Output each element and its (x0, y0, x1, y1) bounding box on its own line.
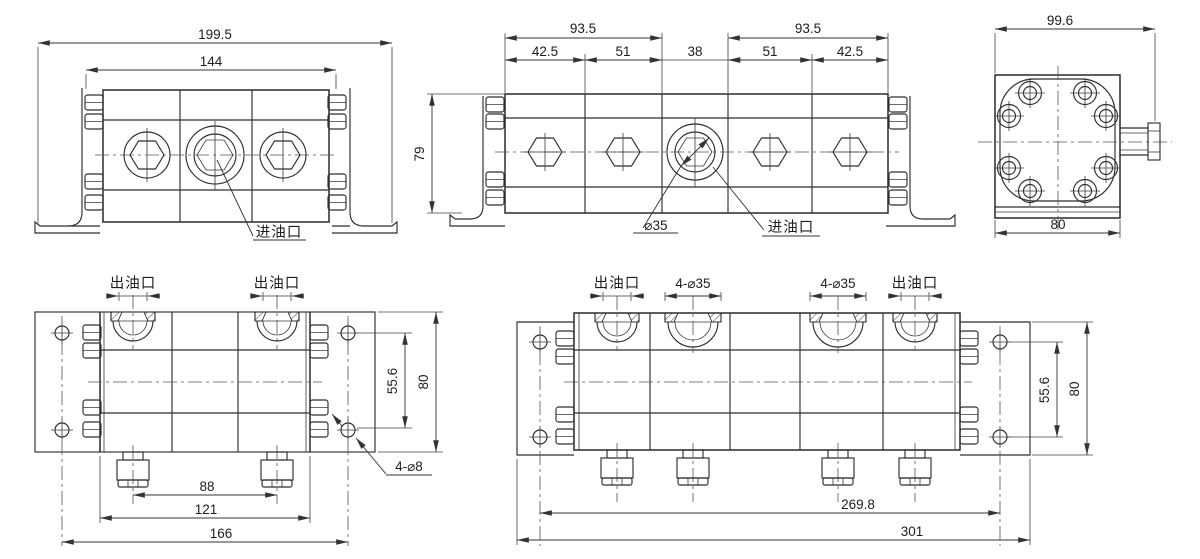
dim-seg2: 51 (615, 44, 630, 59)
inlet-port-label: 进油口 (256, 224, 303, 241)
dim-width: 80 (1050, 217, 1065, 232)
top-view-two-section: 出油口 出油口 88 121 166 (35, 275, 443, 546)
dim-group-left: 93.5 (570, 21, 596, 36)
mount-bracket-right (886, 96, 955, 226)
mount-hole-note: 4-⌀8 (395, 459, 423, 474)
bore-diameter-note: ⌀35 (644, 218, 667, 233)
port-note-left: 4-⌀35 (675, 276, 710, 291)
outlet-port-label: 出油口 (110, 275, 157, 292)
outlet-port-label: 出油口 (892, 275, 939, 292)
dim-depth: 80 (416, 374, 431, 389)
side-view: 99.6 80 (978, 13, 1172, 238)
dim-hole-pitch-y: 55.6 (385, 368, 400, 394)
dim-body-width: 121 (195, 502, 218, 517)
dim-body-width: 144 (200, 54, 223, 69)
outlet-port-label: 出油口 (254, 275, 301, 292)
engineering-drawing: 199.5 144 进油口 (0, 0, 1200, 559)
front-view-two-section: 199.5 144 进油口 (35, 27, 397, 241)
dim-seg1: 42.5 (532, 44, 558, 59)
port-note-right: 4-⌀35 (820, 276, 855, 291)
dim-seg5: 42.5 (837, 44, 863, 59)
dim-overall-width: 199.5 (198, 27, 232, 42)
dim-hole-spacing: 166 (210, 526, 233, 541)
dim-depth: 99.6 (1047, 13, 1073, 28)
mount-bracket-left (450, 96, 505, 226)
drawing-canvas: 199.5 144 进油口 (0, 0, 1200, 559)
top-view-four-section: 出油口 4-⌀35 4-⌀35 出油口 (517, 275, 1093, 546)
inlet-port-label: 进油口 (768, 219, 815, 236)
dim-seg4: 51 (762, 44, 777, 59)
inlet-port-boss (186, 121, 244, 190)
dim-depth: 80 (1067, 381, 1082, 396)
dim-hole-spacing: 269.8 (841, 497, 875, 512)
dim-hole-pitch-y: 55.6 (1037, 377, 1052, 403)
front-view-four-section: 93.5 93.5 42.5 51 38 51 42.5 79 (412, 21, 955, 236)
dim-height: 79 (412, 146, 427, 161)
outlet-port-label: 出油口 (594, 275, 641, 292)
dim-overall-width: 301 (901, 524, 924, 539)
dim-port-spacing: 88 (199, 479, 214, 494)
dim-group-right: 93.5 (795, 21, 821, 36)
inlet-fitting-side (1120, 123, 1160, 160)
dim-seg3: 38 (687, 44, 702, 59)
